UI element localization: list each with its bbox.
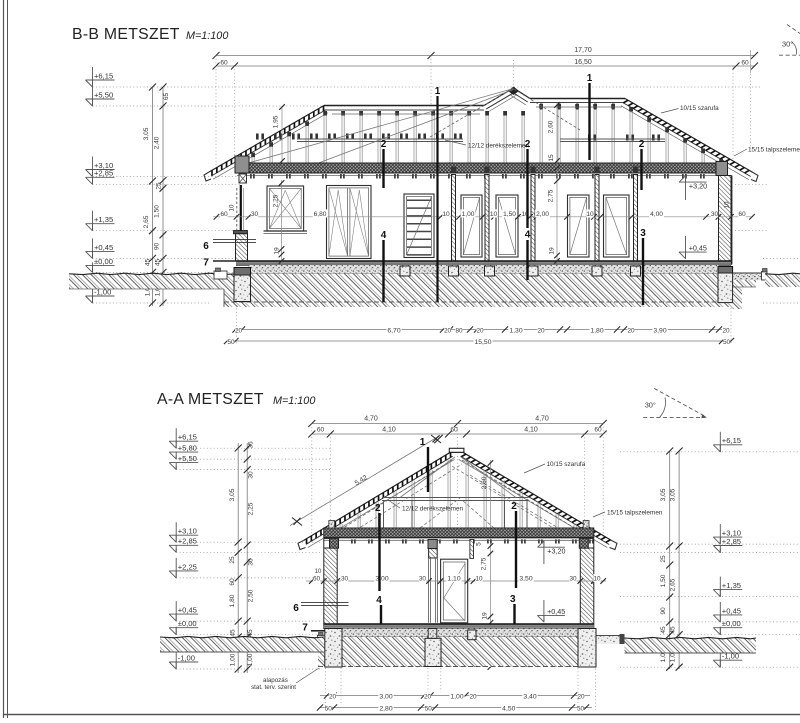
svg-text:+5,50: +5,50 [94,90,113,99]
svg-text:+3,20: +3,20 [689,181,707,190]
svg-text:2,40: 2,40 [154,136,161,149]
svg-text:90: 90 [154,243,161,251]
svg-text:30: 30 [248,471,255,479]
svg-text:+3,10: +3,10 [178,527,197,536]
svg-text:1,00: 1,00 [450,694,463,701]
svg-text:30: 30 [251,211,259,218]
svg-text:3,00: 3,00 [379,694,392,701]
svg-text:19: 19 [482,612,489,620]
svg-text:25: 25 [660,555,667,563]
svg-text:1: 1 [587,73,593,84]
svg-text:60: 60 [450,427,458,434]
svg-text:10/15 szarufa: 10/15 szarufa [547,461,586,468]
svg-text:2: 2 [381,139,387,150]
svg-text:15,50: 15,50 [474,339,491,346]
svg-text:3,90: 3,90 [653,328,666,335]
svg-text:2: 2 [639,139,645,150]
svg-text:+0,45: +0,45 [689,244,707,253]
svg-text:10: 10 [490,211,498,218]
svg-text:7: 7 [203,258,209,269]
svg-text:35: 35 [248,441,255,449]
svg-text:45: 45 [145,259,152,267]
svg-text:2: 2 [511,501,517,512]
svg-text:10: 10 [724,201,731,208]
svg-text:6: 6 [293,603,299,614]
svg-text:30: 30 [711,211,719,218]
svg-text:2,25: 2,25 [248,502,255,515]
svg-text:1,00: 1,00 [230,653,237,666]
svg-text:+0,45: +0,45 [178,606,197,615]
svg-text:3,05: 3,05 [143,127,150,140]
svg-text:2,65: 2,65 [143,215,150,228]
svg-text:2,60: 2,60 [481,476,488,489]
svg-text:+6,15: +6,15 [178,433,197,442]
svg-text:45: 45 [230,629,237,637]
svg-text:6,70: 6,70 [387,328,400,335]
svg-text:19: 19 [549,247,556,255]
svg-text:alapozás: alapozás [263,677,288,684]
svg-text:1,10: 1,10 [447,576,460,583]
svg-text:1,80: 1,80 [590,328,603,335]
svg-text:20: 20 [235,328,243,335]
svg-text:±0,00: ±0,00 [178,619,197,628]
svg-text:2,25: 2,25 [273,194,280,207]
svg-text:30: 30 [419,576,427,583]
svg-text:7: 7 [302,623,308,634]
svg-text:4,10: 4,10 [524,427,538,434]
svg-text:4: 4 [525,230,531,241]
svg-text:20: 20 [424,694,432,701]
svg-text:3,00: 3,00 [375,576,388,583]
svg-text:4,10: 4,10 [382,427,396,434]
svg-text:2,75: 2,75 [481,557,488,570]
svg-text:50: 50 [577,706,585,713]
svg-text:20: 20 [476,328,484,335]
svg-text:45: 45 [670,626,677,634]
svg-text:6,80: 6,80 [314,211,327,218]
svg-text:60: 60 [738,211,746,218]
svg-text:+2,85: +2,85 [722,537,741,546]
svg-text:3,40: 3,40 [523,694,536,701]
svg-text:20: 20 [627,328,635,335]
svg-text:2,75: 2,75 [548,189,555,202]
svg-text:30: 30 [341,576,349,583]
svg-text:+2,25: +2,25 [178,562,197,571]
svg-text:90: 90 [660,607,667,615]
svg-text:+5,50: +5,50 [178,454,197,463]
svg-text:10/15 szarufa: 10/15 szarufa [680,105,719,112]
svg-text:60: 60 [220,60,228,67]
svg-text:65: 65 [163,93,170,101]
svg-text:±0,00: ±0,00 [722,619,741,628]
svg-text:30°: 30° [782,40,793,49]
svg-text:45: 45 [660,626,667,634]
svg-text:45: 45 [155,259,162,267]
svg-text:1,00: 1,00 [247,653,254,666]
svg-text:1: 1 [420,437,426,448]
svg-text:1,95: 1,95 [273,115,280,128]
svg-text:15/15 talpszelemen: 15/15 talpszelemen [748,147,800,154]
svg-text:50: 50 [227,339,235,346]
svg-text:4: 4 [381,230,387,241]
svg-text:1,00: 1,00 [462,211,475,218]
svg-text:2: 2 [525,139,531,150]
svg-text:30: 30 [569,576,577,583]
svg-text:+1,35: +1,35 [94,215,113,224]
svg-text:2,80: 2,80 [379,706,392,713]
svg-text:60: 60 [220,211,228,218]
svg-text:+2,85: +2,85 [94,169,113,178]
svg-text:30°: 30° [645,401,656,410]
svg-text:12/12 derékszelemen: 12/12 derékszelemen [402,506,464,513]
svg-text:4,70: 4,70 [535,416,549,423]
svg-text:+2,85: +2,85 [178,537,197,546]
svg-text:15: 15 [548,154,555,162]
svg-text:17,70: 17,70 [574,47,592,54]
svg-text:6: 6 [203,241,209,252]
svg-text:3,05: 3,05 [670,488,677,501]
svg-text:+1,35: +1,35 [722,581,741,590]
svg-text:+0,45: +0,45 [722,606,741,615]
svg-text:4,00: 4,00 [650,211,663,218]
svg-text:3: 3 [510,594,516,605]
svg-text:A-A METSZET: A-A METSZET [157,391,264,408]
svg-text:10: 10 [442,211,450,218]
svg-text:10: 10 [586,211,594,218]
svg-text:80: 80 [455,328,463,335]
svg-text:±0,00: ±0,00 [94,257,113,266]
svg-text:20: 20 [329,694,337,701]
svg-text:+0,45: +0,45 [94,243,113,252]
svg-text:B-B METSZET: B-B METSZET [72,26,180,43]
svg-text:25: 25 [156,182,163,190]
svg-text:+6,15: +6,15 [94,71,113,80]
svg-text:10: 10 [315,569,322,575]
svg-text:3,05: 3,05 [660,488,667,501]
svg-text:25: 25 [229,556,236,564]
svg-text:2,00: 2,00 [536,211,549,218]
svg-text:15/15 talpszelemen: 15/15 talpszelemen [607,510,663,517]
svg-text:50: 50 [325,706,333,713]
svg-text:50: 50 [723,339,731,346]
svg-text:+0,45: +0,45 [547,607,565,616]
svg-text:5: 5 [476,542,483,546]
svg-text:2: 2 [375,503,381,514]
svg-text:60: 60 [741,60,749,67]
svg-text:20: 20 [722,328,730,335]
svg-text:60: 60 [229,578,236,586]
svg-text:20: 20 [537,328,545,335]
svg-text:10: 10 [593,576,601,583]
svg-text:2,60: 2,60 [548,120,555,133]
svg-text:60: 60 [594,427,602,434]
svg-text:stat. terv. szerint: stat. terv. szerint [251,684,296,691]
svg-text:12/12 derékszelemen: 12/12 derékszelemen [468,143,530,150]
svg-text:2,65: 2,65 [670,578,677,591]
svg-text:1,50: 1,50 [503,211,516,218]
svg-text:4: 4 [376,595,382,606]
svg-text:3,50: 3,50 [519,576,532,583]
svg-text:+5,80: +5,80 [178,444,197,453]
svg-text:1,30: 1,30 [509,328,522,335]
svg-text:20: 20 [577,694,585,701]
svg-text:M=1:100: M=1:100 [273,395,315,407]
svg-text:3,05: 3,05 [229,488,236,501]
svg-text:50: 50 [425,706,433,713]
svg-text:5: 5 [548,170,555,174]
svg-text:1,80: 1,80 [229,594,236,607]
svg-text:20: 20 [469,694,477,701]
svg-text:1,50: 1,50 [660,574,667,587]
svg-text:4,70: 4,70 [364,416,378,423]
svg-text:60: 60 [313,576,321,583]
svg-text:30: 30 [248,558,255,566]
svg-text:3: 3 [640,228,646,239]
svg-text:16,50: 16,50 [574,59,592,66]
svg-text:+6,15: +6,15 [722,436,741,445]
svg-text:19: 19 [274,247,281,255]
svg-text:1,50: 1,50 [154,205,161,218]
svg-text:10: 10 [229,204,236,211]
svg-text:10: 10 [475,576,483,583]
svg-text:4,50: 4,50 [502,706,515,713]
svg-text:-1,00: -1,00 [178,653,195,662]
svg-text:45: 45 [247,629,254,637]
svg-text:60: 60 [317,427,325,434]
svg-text:M=1:100: M=1:100 [186,30,228,42]
svg-text:2,50: 2,50 [248,589,255,602]
svg-text:1: 1 [435,86,441,97]
svg-text:+3,20: +3,20 [547,547,565,556]
svg-text:20: 20 [444,328,452,335]
